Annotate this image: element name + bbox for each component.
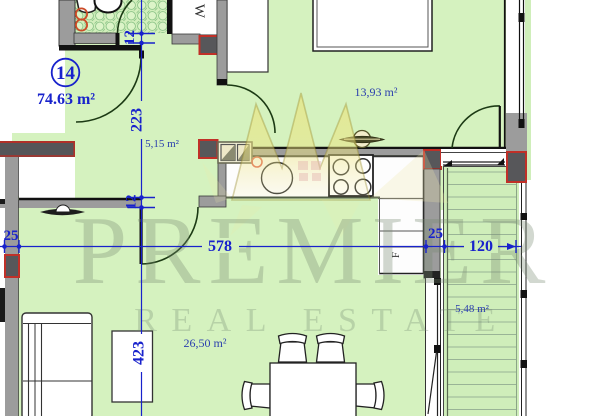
svg-text:5,48 m²: 5,48 m² — [455, 303, 490, 315]
svg-text:5,15 m²: 5,15 m² — [145, 138, 180, 150]
svg-text:223: 223 — [129, 108, 146, 132]
svg-text:12: 12 — [124, 195, 140, 210]
svg-text:W: W — [191, 4, 207, 19]
svg-text:12: 12 — [122, 30, 138, 45]
svg-text:120: 120 — [469, 238, 493, 255]
svg-text:578: 578 — [208, 238, 232, 255]
svg-text:74.63 m²: 74.63 m² — [37, 91, 95, 108]
svg-text:REAL ESTATE: REAL ESTATE — [134, 302, 510, 339]
svg-text:13,93 m²: 13,93 m² — [355, 85, 398, 99]
svg-text:14: 14 — [56, 63, 76, 84]
svg-text:26,50 m²: 26,50 m² — [184, 336, 227, 350]
svg-text:25: 25 — [428, 226, 443, 242]
svg-text:25: 25 — [4, 228, 19, 244]
svg-text:423: 423 — [131, 341, 148, 365]
